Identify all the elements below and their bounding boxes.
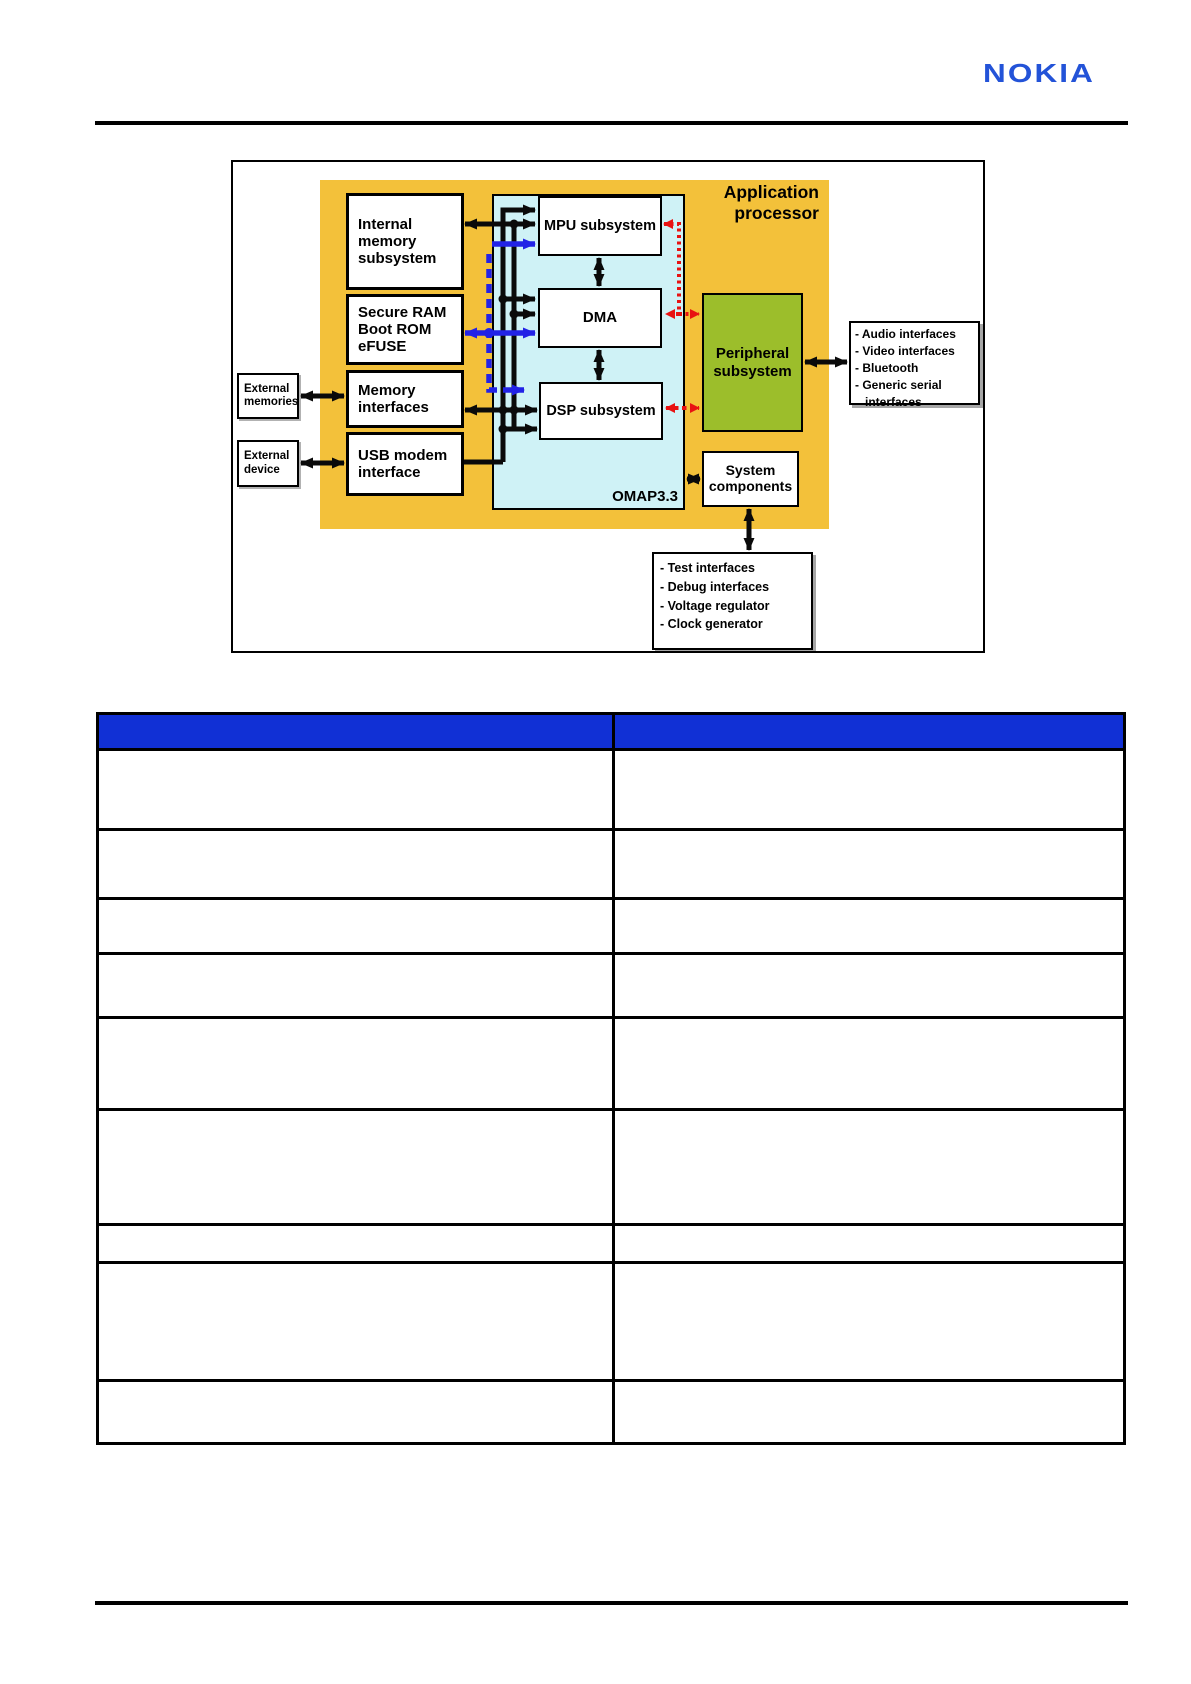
usb-modem-block: USB modem interface	[346, 432, 464, 496]
peripheral-interfaces-list: - Audio interfaces - Video interfaces - …	[849, 321, 980, 405]
table-cell	[98, 1225, 614, 1263]
table-header-cell	[614, 714, 1125, 750]
table-row	[98, 1018, 1125, 1110]
content-table-wrap	[96, 712, 1126, 1445]
secure-ram-block: Secure RAM Boot ROM eFUSE	[346, 294, 464, 365]
external-memories-block: External memories	[237, 373, 299, 419]
table-row	[98, 899, 1125, 954]
memory-interfaces-block: Memory interfaces	[346, 370, 464, 428]
header-rule	[95, 121, 1128, 125]
nokia-logo: NOKIA	[983, 60, 1141, 89]
internal-memory-block: Internal memory subsystem	[346, 193, 464, 290]
table-cell	[614, 830, 1125, 899]
table-cell	[614, 1381, 1125, 1444]
table-cell	[98, 1110, 614, 1225]
omap-block-diagram: Application processor OMAP3.3 Internal m…	[231, 160, 985, 653]
external-device-block: External device	[237, 440, 299, 487]
table-cell	[98, 750, 614, 830]
table-cell	[614, 1018, 1125, 1110]
table-cell	[614, 750, 1125, 830]
dma-block: DMA	[538, 288, 662, 348]
table-row	[98, 750, 1125, 830]
table-cell	[98, 1018, 614, 1110]
table-cell	[614, 954, 1125, 1018]
footer-rule	[95, 1601, 1128, 1605]
table-header-row	[98, 714, 1125, 750]
peripheral-subsystem-block: Peripheral subsystem	[702, 293, 803, 432]
table-row	[98, 1225, 1125, 1263]
table-cell	[98, 830, 614, 899]
table-row	[98, 1110, 1125, 1225]
system-interfaces-list: - Test interfaces - Debug interfaces - V…	[652, 552, 813, 650]
table-row	[98, 1263, 1125, 1381]
table-cell	[614, 1263, 1125, 1381]
table-cell	[614, 1225, 1125, 1263]
table-row	[98, 954, 1125, 1018]
dsp-subsystem-block: DSP subsystem	[539, 382, 663, 440]
table-cell	[614, 899, 1125, 954]
table-row	[98, 1381, 1125, 1444]
table-cell	[614, 1110, 1125, 1225]
mpu-subsystem-block: MPU subsystem	[538, 196, 662, 256]
content-table	[96, 712, 1126, 1445]
table-row	[98, 830, 1125, 899]
table-cell	[98, 1381, 614, 1444]
table-cell	[98, 954, 614, 1018]
document-page: NOKIA Application processor OMAP3.3 Inte…	[0, 0, 1191, 1684]
system-components-block: System components	[702, 451, 799, 507]
table-cell	[98, 1263, 614, 1381]
table-header-cell	[98, 714, 614, 750]
table-cell	[98, 899, 614, 954]
omap-chip-label: OMAP3.3	[533, 488, 678, 505]
